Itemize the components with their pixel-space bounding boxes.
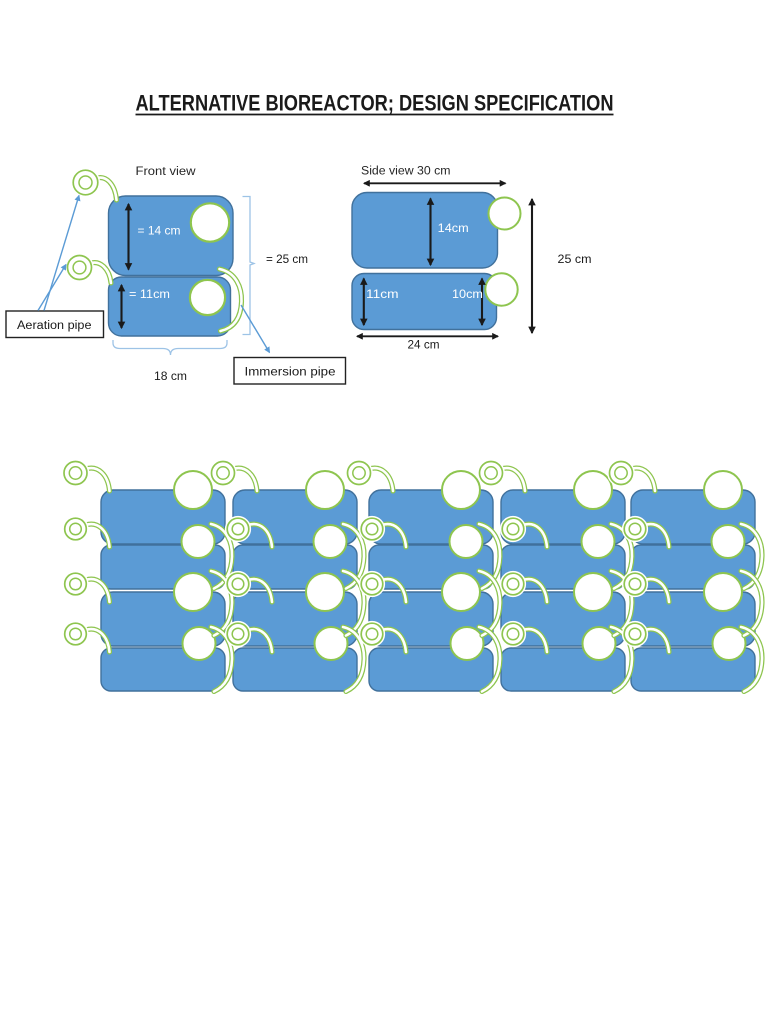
svg-text:ALTERNATIVE BIOREACTOR; DESIGN: ALTERNATIVE BIOREACTOR; DESIGN SPECIFICA… (136, 91, 614, 116)
svg-text:11cm: 11cm (366, 289, 399, 301)
svg-text:18 cm: 18 cm (154, 371, 187, 383)
svg-text:Front view: Front view (136, 166, 197, 178)
svg-text:= 14 cm: = 14 cm (138, 225, 181, 237)
svg-text:Side view 30 cm: Side view 30 cm (361, 166, 451, 178)
svg-text:Immersion pipe: Immersion pipe (245, 366, 336, 378)
svg-text:= 11cm: = 11cm (129, 289, 170, 301)
svg-text:Aeration pipe: Aeration pipe (17, 320, 92, 332)
svg-text:24 cm: 24 cm (408, 340, 440, 352)
svg-text:25 cm: 25 cm (558, 254, 592, 266)
svg-text:14cm: 14cm (438, 223, 469, 235)
svg-text:10cm: 10cm (452, 289, 483, 301)
svg-text:= 25 cm: = 25 cm (266, 254, 308, 266)
